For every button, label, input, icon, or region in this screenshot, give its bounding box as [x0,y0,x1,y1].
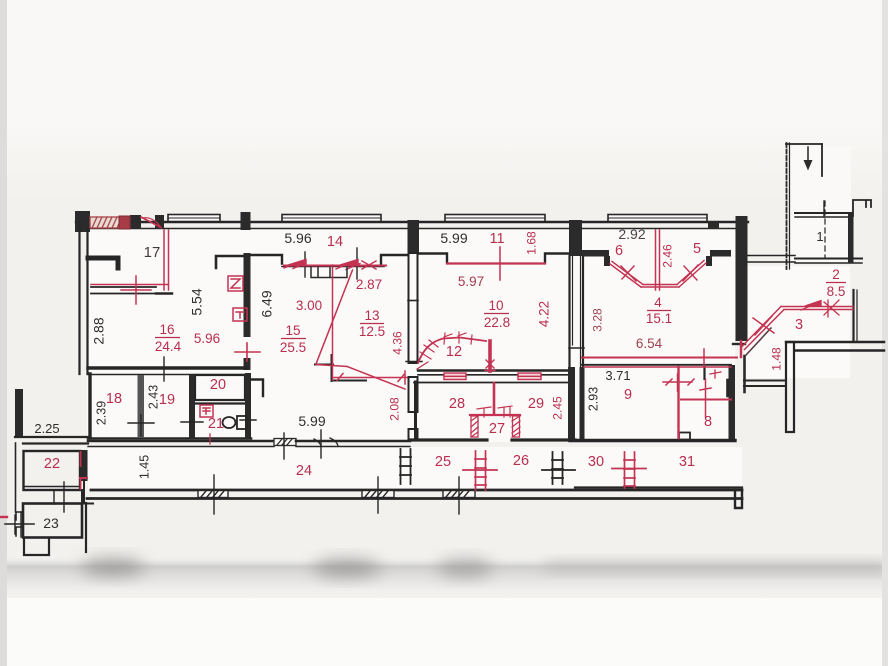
svg-text:12.5: 12.5 [359,324,385,339]
svg-text:1.45: 1.45 [138,455,152,479]
svg-text:29: 29 [528,396,544,412]
svg-text:1.68: 1.68 [525,231,539,255]
svg-text:8.5: 8.5 [827,284,846,299]
svg-text:8: 8 [704,414,712,430]
svg-text:3.00: 3.00 [296,298,322,313]
svg-text:6.54: 6.54 [636,336,663,351]
svg-text:1.48: 1.48 [770,347,784,371]
svg-text:12: 12 [446,344,462,360]
svg-text:4.22: 4.22 [537,301,552,327]
svg-text:5.96: 5.96 [194,331,220,346]
svg-text:4.36: 4.36 [391,331,405,355]
svg-text:22.8: 22.8 [484,315,510,330]
svg-text:5.97: 5.97 [458,274,484,289]
svg-text:13: 13 [364,308,379,323]
svg-text:16: 16 [159,322,174,337]
svg-text:5: 5 [693,241,701,257]
svg-text:2.88: 2.88 [91,317,107,344]
svg-text:21: 21 [208,416,224,432]
svg-text:2.08: 2.08 [388,397,402,421]
svg-text:22: 22 [44,456,60,472]
svg-text:15: 15 [285,323,300,338]
svg-text:9: 9 [624,387,632,403]
svg-text:31: 31 [679,454,695,470]
svg-text:2.46: 2.46 [661,244,675,268]
svg-text:3: 3 [795,317,803,333]
svg-text:25: 25 [435,454,451,470]
svg-text:3.28: 3.28 [591,308,605,332]
svg-text:2.87: 2.87 [356,277,382,292]
svg-text:5.96: 5.96 [284,230,311,246]
svg-text:5.99: 5.99 [298,413,325,429]
svg-text:25.5: 25.5 [280,340,306,355]
svg-text:2.45: 2.45 [551,396,565,420]
svg-text:10: 10 [488,298,503,313]
svg-text:5.54: 5.54 [189,288,205,315]
svg-text:2.93: 2.93 [587,387,601,411]
svg-text:23: 23 [43,515,59,531]
svg-text:4: 4 [654,295,662,310]
svg-text:19: 19 [159,392,175,408]
svg-text:26: 26 [513,453,529,469]
svg-text:3.71: 3.71 [605,368,630,383]
svg-text:18: 18 [106,391,122,407]
svg-text:6.49: 6.49 [259,290,275,317]
svg-text:2.92: 2.92 [618,226,645,242]
svg-text:11: 11 [489,231,504,247]
svg-text:27: 27 [489,421,505,437]
svg-text:15.1: 15.1 [646,311,672,326]
svg-text:24: 24 [296,463,312,479]
svg-text:6: 6 [615,243,623,259]
svg-text:1: 1 [816,229,823,244]
svg-text:28: 28 [449,396,465,412]
svg-text:14: 14 [327,234,343,250]
svg-text:2: 2 [832,267,840,282]
svg-text:20: 20 [210,377,226,393]
svg-text:24.4: 24.4 [155,339,182,354]
svg-text:17: 17 [144,244,161,261]
svg-text:5.99: 5.99 [440,230,467,246]
svg-text:2.25: 2.25 [34,421,59,436]
svg-text:30: 30 [588,454,604,470]
